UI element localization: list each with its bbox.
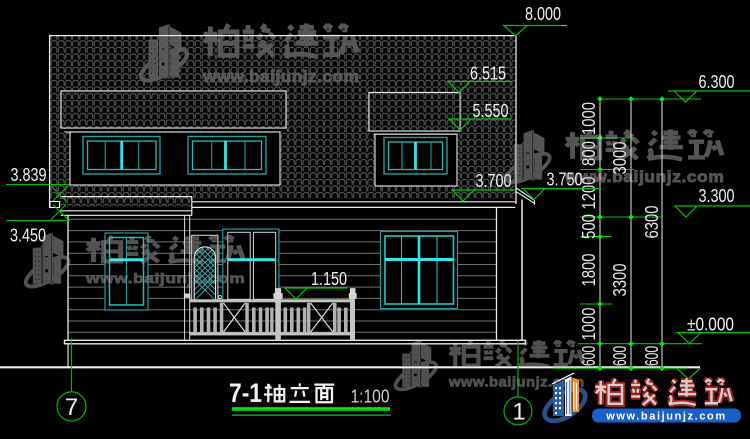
svg-text:6300: 6300	[642, 206, 662, 239]
svg-text:5.550: 5.550	[473, 100, 509, 121]
svg-text:www.baijunjz.com: www.baijunjz.com	[605, 410, 727, 422]
svg-text:1000: 1000	[579, 308, 599, 341]
svg-text:1:100: 1:100	[351, 387, 390, 407]
svg-text:7-1: 7-1	[229, 378, 262, 408]
svg-text:3.450: 3.450	[10, 225, 46, 246]
svg-text:3.839: 3.839	[11, 164, 47, 185]
svg-text:1.150: 1.150	[311, 268, 347, 289]
svg-text:3300: 3300	[610, 264, 630, 297]
svg-text:8.000: 8.000	[525, 3, 561, 24]
svg-text:600: 600	[642, 346, 662, 366]
svg-text:600: 600	[610, 346, 630, 366]
svg-text:7: 7	[65, 394, 78, 421]
svg-text:6.515: 6.515	[470, 63, 506, 84]
svg-text:500: 500	[579, 214, 599, 239]
svg-text:1800: 1800	[579, 254, 599, 287]
svg-text:6.300: 6.300	[699, 71, 735, 92]
svg-text:3.300: 3.300	[699, 185, 735, 206]
svg-text:±0.000: ±0.000	[687, 314, 734, 335]
svg-text:1: 1	[512, 399, 525, 426]
